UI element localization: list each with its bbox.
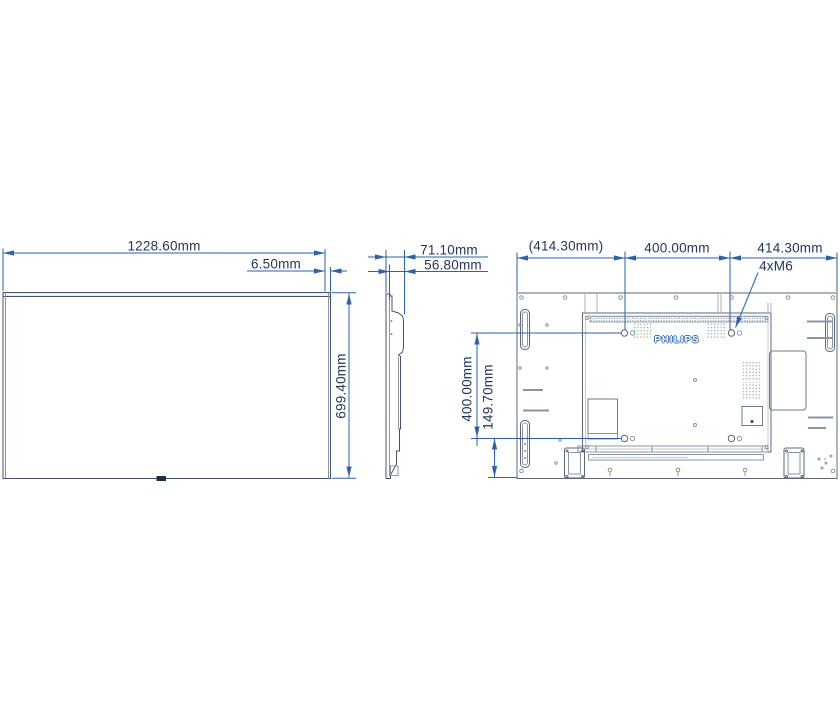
front-view-dimensions bbox=[3, 249, 356, 479]
rear-bottom-offset-dimension-label: 149.70mm bbox=[481, 364, 495, 429]
front-view-drawing bbox=[3, 293, 331, 482]
side-depth-dimension-label: 71.10mm bbox=[420, 243, 478, 257]
dimension-drawing-canvas: 1228.60mm 6.50mm 699.40mm 71.10mm 56.80m… bbox=[0, 0, 840, 720]
front-height-dimension-label: 699.40mm bbox=[334, 353, 348, 418]
side-body-depth-dimension-label: 56.80mm bbox=[424, 258, 482, 272]
vesa-mount-holes bbox=[621, 330, 741, 442]
ops-slot-cover bbox=[770, 351, 807, 410]
rear-left-span-dimension-label: (414.30mm) bbox=[529, 239, 604, 253]
philips-logo: PHILIPS bbox=[654, 335, 699, 345]
ir-sensor-mark bbox=[157, 476, 167, 481]
rear-right-span-dimension-label: 414.30mm bbox=[757, 241, 822, 255]
rear-view-dimensions bbox=[471, 252, 837, 478]
front-bezel-dimension-label: 6.50mm bbox=[251, 257, 301, 271]
front-width-dimension-label: 1228.60mm bbox=[127, 239, 200, 253]
drawing-linework bbox=[0, 0, 840, 720]
rear-vesa-height-dimension-label: 400.00mm bbox=[460, 356, 474, 421]
side-view-drawing bbox=[386, 294, 404, 479]
mount-screw-spec-label: 4xM6 bbox=[759, 259, 793, 273]
rear-vesa-width-dimension-label: 400.00mm bbox=[644, 241, 709, 255]
rear-view-drawing bbox=[517, 293, 837, 479]
